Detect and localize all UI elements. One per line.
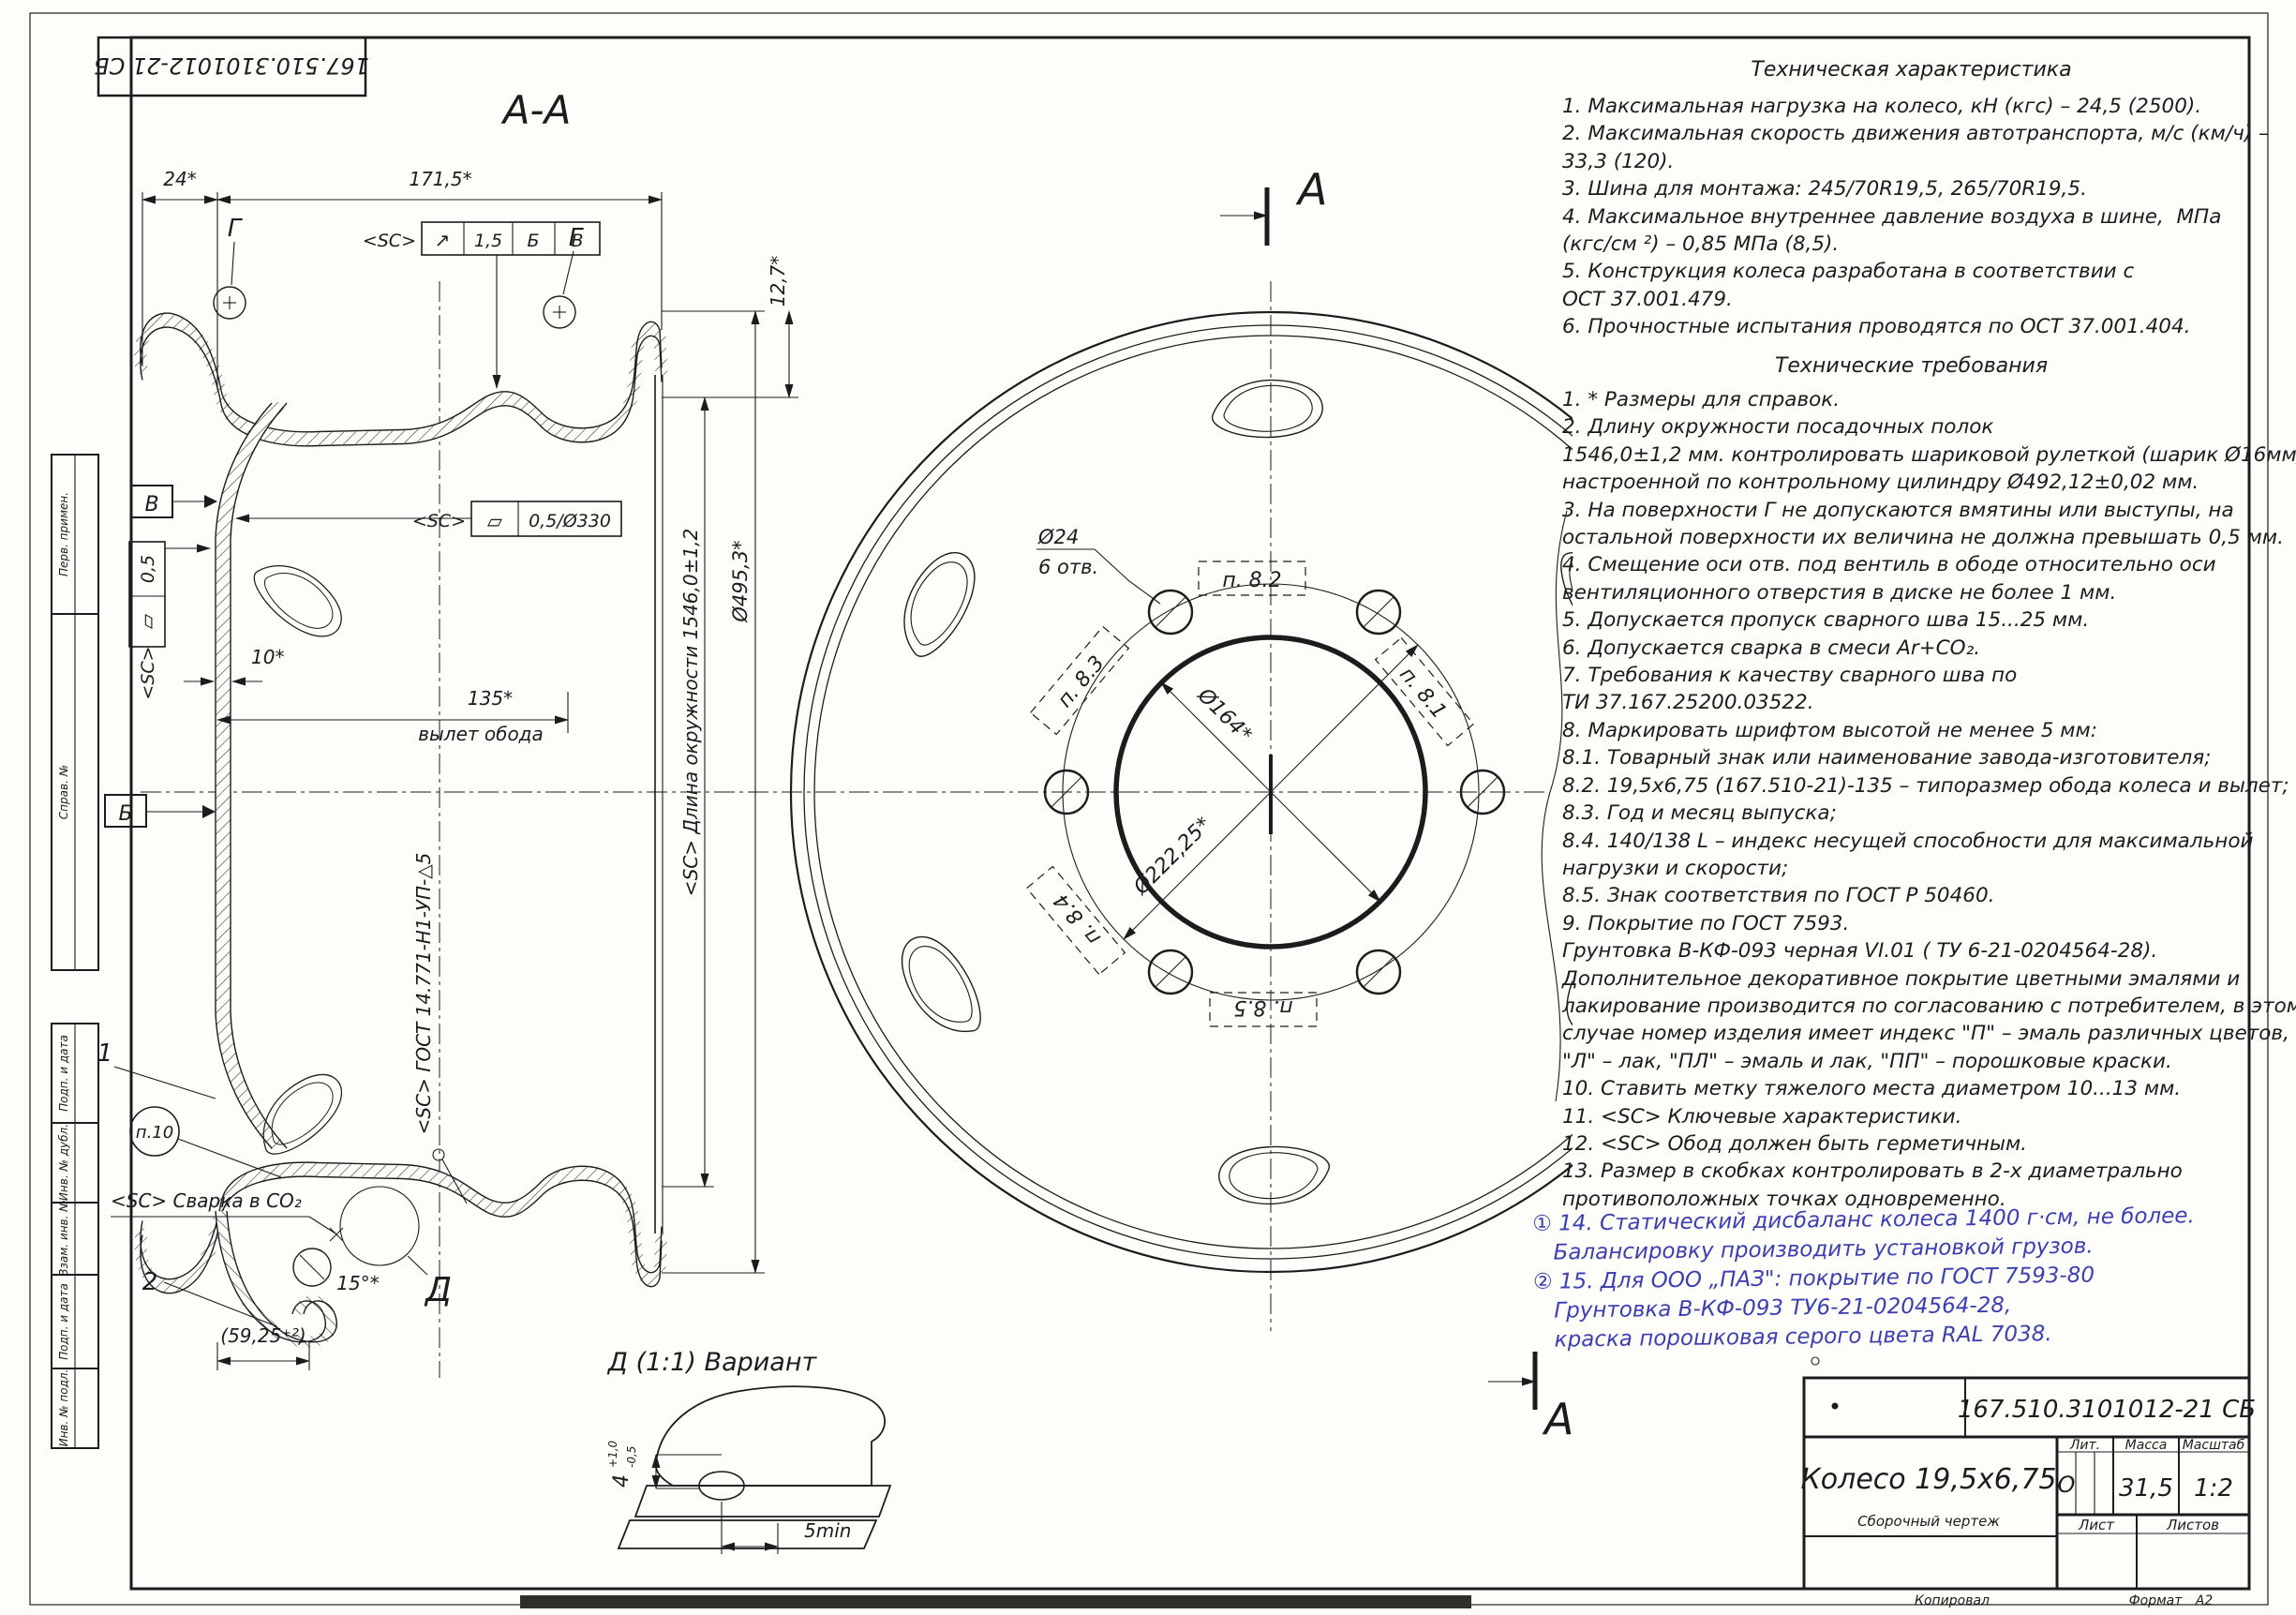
- dim-24: 24*: [163, 168, 196, 190]
- tech-requirement-line: 8. Маркировать шрифтом высотой не менее …: [1562, 717, 2274, 744]
- fcf3-value: 0,5/Ø330: [529, 511, 611, 531]
- tech-requirement-line: 2. Длину окружности посадочных полок: [1562, 413, 2274, 441]
- corner-stamp: 167.510.3101012-21 СБ: [94, 37, 369, 96]
- tech-requirement-line: Грунтовка В-КФ-093 черная VI.01 ( ТУ 6-2…: [1562, 937, 2274, 965]
- dim-15deg: 15°*: [336, 1272, 379, 1294]
- tech-requirement-line: 1546,0±1,2 мм. контролировать шариковой …: [1562, 441, 2274, 469]
- hole-dia-note: Ø24: [1037, 526, 1079, 548]
- lit-header: Лит.: [2069, 1438, 2100, 1453]
- tech-requirement-line: 4. Смещение оси отв. под вентиль в ободе…: [1562, 551, 2274, 578]
- tech-requirement-line: 9. Покрытие по ГОСТ 7593.: [1562, 910, 2274, 937]
- tech-requirement-line: настроенной по контрольному цилиндру Ø49…: [1562, 469, 2274, 496]
- scale-header: Масштаб: [2183, 1438, 2245, 1453]
- mass-value: 31,5: [2119, 1474, 2173, 1503]
- marking-zone-8-3: п. 8.3: [1031, 626, 1129, 734]
- margin-label: Подп. и дата: [57, 1035, 70, 1112]
- section-letter-a-bottom: А: [1542, 1394, 1573, 1444]
- dim-135-label: вылет обода: [418, 723, 544, 745]
- flatness-icon: ▱: [487, 510, 503, 532]
- margin-column: Перв. примен. Справ. № Подп. и дата Инв.…: [52, 455, 98, 1448]
- fcf-flatness-330: <SC> ▱ 0,5/Ø330: [236, 501, 621, 536]
- tech-characteristic-line: 6. Прочностные испытания проводятся по О…: [1562, 313, 2274, 340]
- format-label: Формат: [2129, 1593, 2184, 1608]
- doc-subtitle: Сборочный чертеж: [1857, 1513, 2000, 1530]
- tech-characteristic-line: 4. Максимальное внутреннее давление возд…: [1562, 203, 2274, 231]
- circumference-note: <SC> Длина окружности 1546,0±1,2: [679, 529, 702, 896]
- dim-4-sup: +1,0: [606, 1440, 619, 1468]
- tech-characteristics-title: Техническая характеристика: [1562, 58, 2260, 82]
- margin-label: Подп. и дата: [57, 1283, 70, 1360]
- dim-171-5: 171,5*: [409, 168, 471, 190]
- margin-label: Инв. № подл.: [57, 1369, 70, 1447]
- tech-requirement-line: 11. <SC> Ключевые характеристики.: [1562, 1103, 2274, 1130]
- part-name: Колесо 19,5х6,75: [1800, 1463, 2056, 1496]
- handwritten-notes: ① 14. Статический дисбаланс колеса 1400 …: [1532, 1201, 2284, 1355]
- tech-requirement-line: 5. Допускается пропуск сварного шва 15..…: [1562, 606, 2274, 634]
- dim-d495: Ø495,3*: [729, 540, 752, 622]
- copied-label: Копировал: [1915, 1593, 1990, 1608]
- tech-requirement-line: 8.1. Товарный знак или наименование заво…: [1562, 744, 2274, 771]
- sheet-header: Лист: [2078, 1517, 2115, 1533]
- tech-characteristic-line: 33,3 (120).: [1562, 148, 2274, 175]
- dim-135: 135*: [468, 687, 513, 710]
- scan-shadow-strip: [520, 1595, 1471, 1608]
- section-view: А-А Г Г: [97, 87, 798, 1370]
- tech-requirement-line: остальной поверхности их величина не дол…: [1562, 524, 2274, 551]
- corner-stamp-number: 167.510.3101012-21 СБ: [94, 52, 369, 79]
- dim-d164: Ø164*: [1192, 683, 1256, 747]
- p82-label: п. 8.2: [1222, 569, 1281, 592]
- fcf-runout: <SC> ↗ 1,5 Б В: [363, 222, 600, 388]
- dim-d222: Ø222,25*: [1129, 813, 1216, 900]
- tech-requirement-line: 10. Ставить метку тяжелого места диаметр…: [1562, 1075, 2274, 1102]
- tech-characteristics-lines: 1. Максимальная нагрузка на колесо, кН (…: [1562, 93, 2274, 341]
- tech-requirement-line: 3. На поверхности Г не допускаются вмяти…: [1562, 497, 2274, 524]
- marking-zone-8-2: п. 8.2: [1199, 561, 1305, 595]
- surface-g-left-label: Г: [228, 215, 244, 243]
- hand-hole-section-lower: [246, 1062, 354, 1165]
- tech-requirement-line: 7. Требования к качеству сварного шва по: [1562, 662, 2274, 689]
- datum-v: В: [131, 486, 217, 517]
- detail-upper-piece: [656, 1386, 885, 1486]
- tech-requirement-line: 13. Размер в скобках контролировать в 2-…: [1562, 1158, 2274, 1185]
- fcf2-sc-label: <SC>: [138, 646, 158, 699]
- scale-value: 1:2: [2194, 1474, 2233, 1503]
- detail-lower-piece: [635, 1486, 890, 1517]
- format-value: А2: [2195, 1593, 2214, 1608]
- tech-characteristic-line: 1. Максимальная нагрузка на колесо, кН (…: [1562, 93, 2274, 120]
- fcf3-sc-label: <SC>: [412, 511, 466, 531]
- dim-12-7: 12,7*: [767, 256, 789, 307]
- section-mark-bottom: А: [1488, 1352, 1573, 1444]
- dim-4-sub: -0,5: [625, 1446, 638, 1468]
- tech-requirements-lines: 1. * Размеры для справок.2. Длину окружн…: [1562, 386, 2274, 1213]
- tech-requirement-line: 8.3. Год и месяц выпуска;: [1562, 800, 2274, 827]
- tech-requirement-line: 8.2. 19,5х6,75 (167.510-21)-135 – типора…: [1562, 772, 2274, 800]
- fcf-datum-2: В: [571, 231, 583, 251]
- note-p10: п.10: [136, 1123, 173, 1143]
- doc-number: 167.510.3101012-21 СБ: [1958, 1396, 2256, 1424]
- lit-value: О: [2058, 1472, 2076, 1498]
- tech-requirement-line: 6. Допускается сварка в смеси Ar+CO₂.: [1562, 635, 2274, 662]
- tech-characteristic-line: (кгс/см ²) – 0,85 МПа (8,5).: [1562, 231, 2274, 258]
- weld-co2-note: <SC> Сварка в CO₂: [111, 1189, 302, 1212]
- fcf-value: 1,5: [474, 231, 502, 251]
- fcf2-value: 0,5: [138, 555, 158, 583]
- tech-requirement-line: случае номер изделия имеет индекс "П" – …: [1562, 1020, 2274, 1047]
- tech-requirement-line: 12. <SC> Обод должен быть герметичным.: [1562, 1130, 2274, 1158]
- section-mark-top: А: [1220, 164, 1327, 246]
- datum-v-label: В: [144, 493, 158, 516]
- tech-requirement-line: 1. * Размеры для справок.: [1562, 386, 2274, 413]
- tech-requirement-line: нагрузки и скорости;: [1562, 855, 2274, 882]
- margin-label: Взам. инв. №: [57, 1200, 70, 1276]
- marking-zone-8-4: п. 8.4: [1027, 866, 1126, 974]
- detail-view: Д (1:1) Вариант 4 +1,0 -0,5 5min: [606, 1348, 890, 1554]
- flatness-icon: ▱: [136, 613, 158, 629]
- hole-count-note: 6 отв.: [1038, 556, 1098, 578]
- position-1: 1: [97, 1039, 113, 1068]
- fcf-sc-label: <SC>: [363, 231, 416, 251]
- section-title: А-А: [500, 87, 572, 133]
- hand-hole-section-upper: [245, 547, 353, 650]
- detail-title: Д (1:1) Вариант: [607, 1348, 818, 1377]
- tech-requirement-line: 8.5. Знак соответствия по ГОСТ Р 50460.: [1562, 882, 2274, 909]
- margin-label: Инв. № дубл.: [57, 1124, 70, 1201]
- dim-4-base: 4: [610, 1474, 634, 1488]
- tech-characteristic-line: 5. Конструкция колеса разработана в соот…: [1562, 258, 2274, 285]
- tech-characteristic-line: 2. Максимальная скорость движения автотр…: [1562, 120, 2274, 147]
- tech-requirement-line: 8.4. 140/138 L – индекс несущей способно…: [1562, 828, 2274, 855]
- tech-requirements-title: Технические требования: [1562, 354, 2260, 378]
- tech-characteristic-line: 3. Шина для монтажа: 245/70R19,5, 265/70…: [1562, 175, 2274, 202]
- weld-gost-note: <SC> ГОСТ 14.771-Н1-УП-△5: [412, 853, 435, 1135]
- margin-label: Перв. примен.: [57, 492, 70, 576]
- mass-header: Масса: [2125, 1438, 2168, 1453]
- tech-requirement-line: вентиляционного отверстия в диске не бол…: [1562, 579, 2274, 606]
- tech-requirement-line: лакирование производится по согласованию…: [1562, 993, 2274, 1020]
- detail-d-mark: Д: [424, 1271, 452, 1309]
- tech-requirement-line: "Л" – лак, "ПЛ" – эмаль и лак, "ПП" – по…: [1562, 1048, 2274, 1075]
- position-2: 2: [142, 1268, 158, 1296]
- section-letter-a-top: А: [1295, 164, 1327, 215]
- runout-icon: ↗: [435, 229, 451, 251]
- dim-5min: 5min: [804, 1519, 851, 1542]
- fcf-datum-1: Б: [527, 231, 539, 251]
- sheets-header: Листов: [2166, 1517, 2219, 1533]
- dim-10: 10*: [251, 646, 284, 668]
- datum-b-label: Б: [118, 802, 132, 826]
- title-block: 167.510.3101012-21 СБ Колесо 19,5х6,75 С…: [1800, 1357, 2256, 1608]
- fcf-flatness-left: 0,5 ▱ <SC>: [129, 542, 210, 700]
- tech-requirement-line: Дополнительное декоративное покрытие цве…: [1562, 965, 2274, 993]
- margin-label: Справ. №: [57, 765, 70, 819]
- p85-label: п. 8.5: [1233, 995, 1292, 1019]
- dim-4-group: 4 +1,0 -0,5: [606, 1440, 638, 1488]
- drawing-sheet: Перв. примен. Справ. № Подп. и дата Инв.…: [0, 0, 2296, 1615]
- tech-characteristic-line: ОСТ 37.001.479.: [1562, 286, 2274, 313]
- datum-b: Б: [105, 795, 216, 827]
- tech-requirement-line: ТИ 37.167.25200.03522.: [1562, 689, 2274, 716]
- dim-59-25: (59,25⁺²): [220, 1324, 306, 1347]
